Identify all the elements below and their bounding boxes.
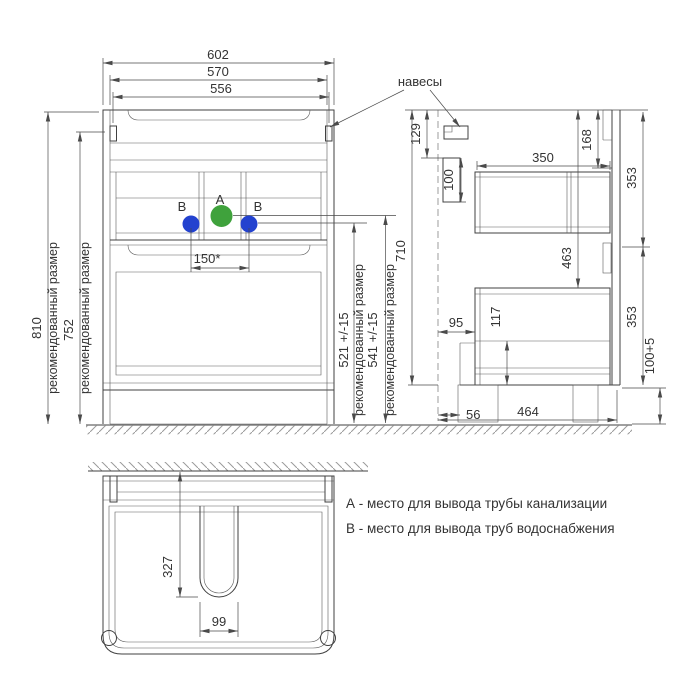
dim-350: 350 <box>532 150 554 165</box>
dim-353-top: 353 <box>624 167 639 189</box>
dim-168: 168 <box>579 129 594 151</box>
dim-117: 117 <box>488 307 503 328</box>
side-view-dimensions: 129 100 350 168 463 710 353 353 100+5 95… <box>393 110 666 424</box>
hanger-bracket-right <box>326 126 333 141</box>
side-view: навесы <box>330 74 650 422</box>
plan-bracket-left <box>110 476 117 502</box>
dim-810: 810 <box>29 317 44 339</box>
dim-100-5: 100+5 <box>642 338 657 375</box>
dim-100: 100 <box>441 169 456 191</box>
side-hanger-bracket <box>444 126 468 139</box>
side-foot-right <box>573 385 598 422</box>
legend-line-a: А - место для вывода трубы канализации <box>346 496 607 511</box>
front-view-dimensions: 602 570 556 810 рекомендованный размер 7… <box>29 47 397 424</box>
dim-752-note: рекомендованный размер <box>78 242 92 394</box>
siphon-cutout <box>200 506 238 597</box>
dim-327: 327 <box>160 556 175 578</box>
technical-drawing-vanity-cabinet: A B B 602 570 556 810 рекомендованный ра… <box>0 0 700 700</box>
label-point-b-right: B <box>254 199 263 214</box>
dim-556: 556 <box>210 81 232 96</box>
hanger-bracket-left <box>110 126 117 141</box>
wall-hatch <box>88 462 368 471</box>
dim-710: 710 <box>393 240 408 262</box>
legend: А - место для вывода трубы канализации В… <box>346 496 615 536</box>
dim-810-note: рекомендованный размер <box>46 242 60 394</box>
legend-line-b: В - место для вывода труб водоснабжения <box>346 521 615 536</box>
drawing-canvas: A B B 602 570 556 810 рекомендованный ра… <box>0 0 700 700</box>
dim-353-bottom: 353 <box>624 306 639 328</box>
dim-150: 150* <box>194 251 221 266</box>
outlet-a-circle <box>211 205 233 227</box>
dim-521: 521 +/-15 <box>336 312 351 367</box>
dim-570: 570 <box>207 64 229 79</box>
dim-602: 602 <box>207 47 229 62</box>
dim-129: 129 <box>408 123 423 145</box>
bottom-view: 327 99 <box>88 462 368 654</box>
label-point-a: A <box>216 192 225 207</box>
dim-541: 541 +/-15 <box>365 312 380 367</box>
ground-hatch <box>86 425 632 434</box>
dim-99: 99 <box>212 614 226 629</box>
plan-bracket-right <box>325 476 332 502</box>
label-point-b-left: B <box>178 199 187 214</box>
label-hangers: навесы <box>398 74 442 89</box>
dim-464: 464 <box>517 404 539 419</box>
dim-752: 752 <box>61 319 76 341</box>
dim-463: 463 <box>559 247 574 269</box>
dim-521-note: рекомендованный размер <box>352 264 366 416</box>
dim-95: 95 <box>449 315 463 330</box>
dim-541-note: рекомендованный размер <box>383 264 397 416</box>
